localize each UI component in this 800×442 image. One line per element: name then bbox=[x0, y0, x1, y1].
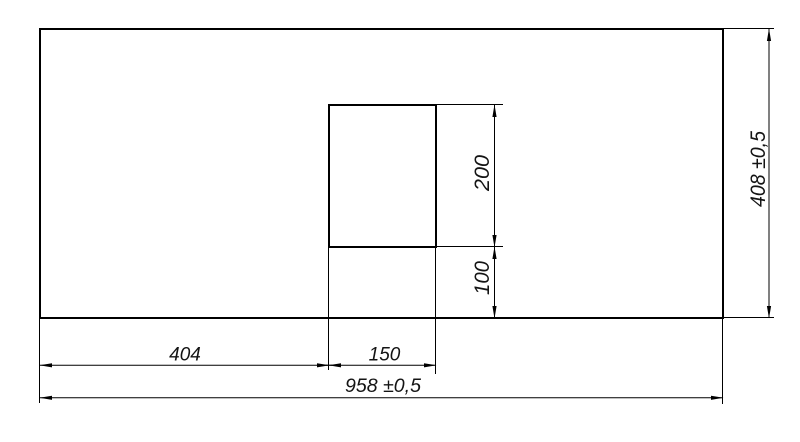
svg-text:150: 150 bbox=[369, 345, 401, 366]
svg-text:408 ±0,5: 408 ±0,5 bbox=[746, 130, 770, 207]
svg-text:100: 100 bbox=[471, 261, 494, 295]
svg-text:200: 200 bbox=[471, 155, 494, 192]
svg-text:958 ±0,5: 958 ±0,5 bbox=[345, 376, 421, 397]
svg-text:404: 404 bbox=[169, 345, 201, 366]
